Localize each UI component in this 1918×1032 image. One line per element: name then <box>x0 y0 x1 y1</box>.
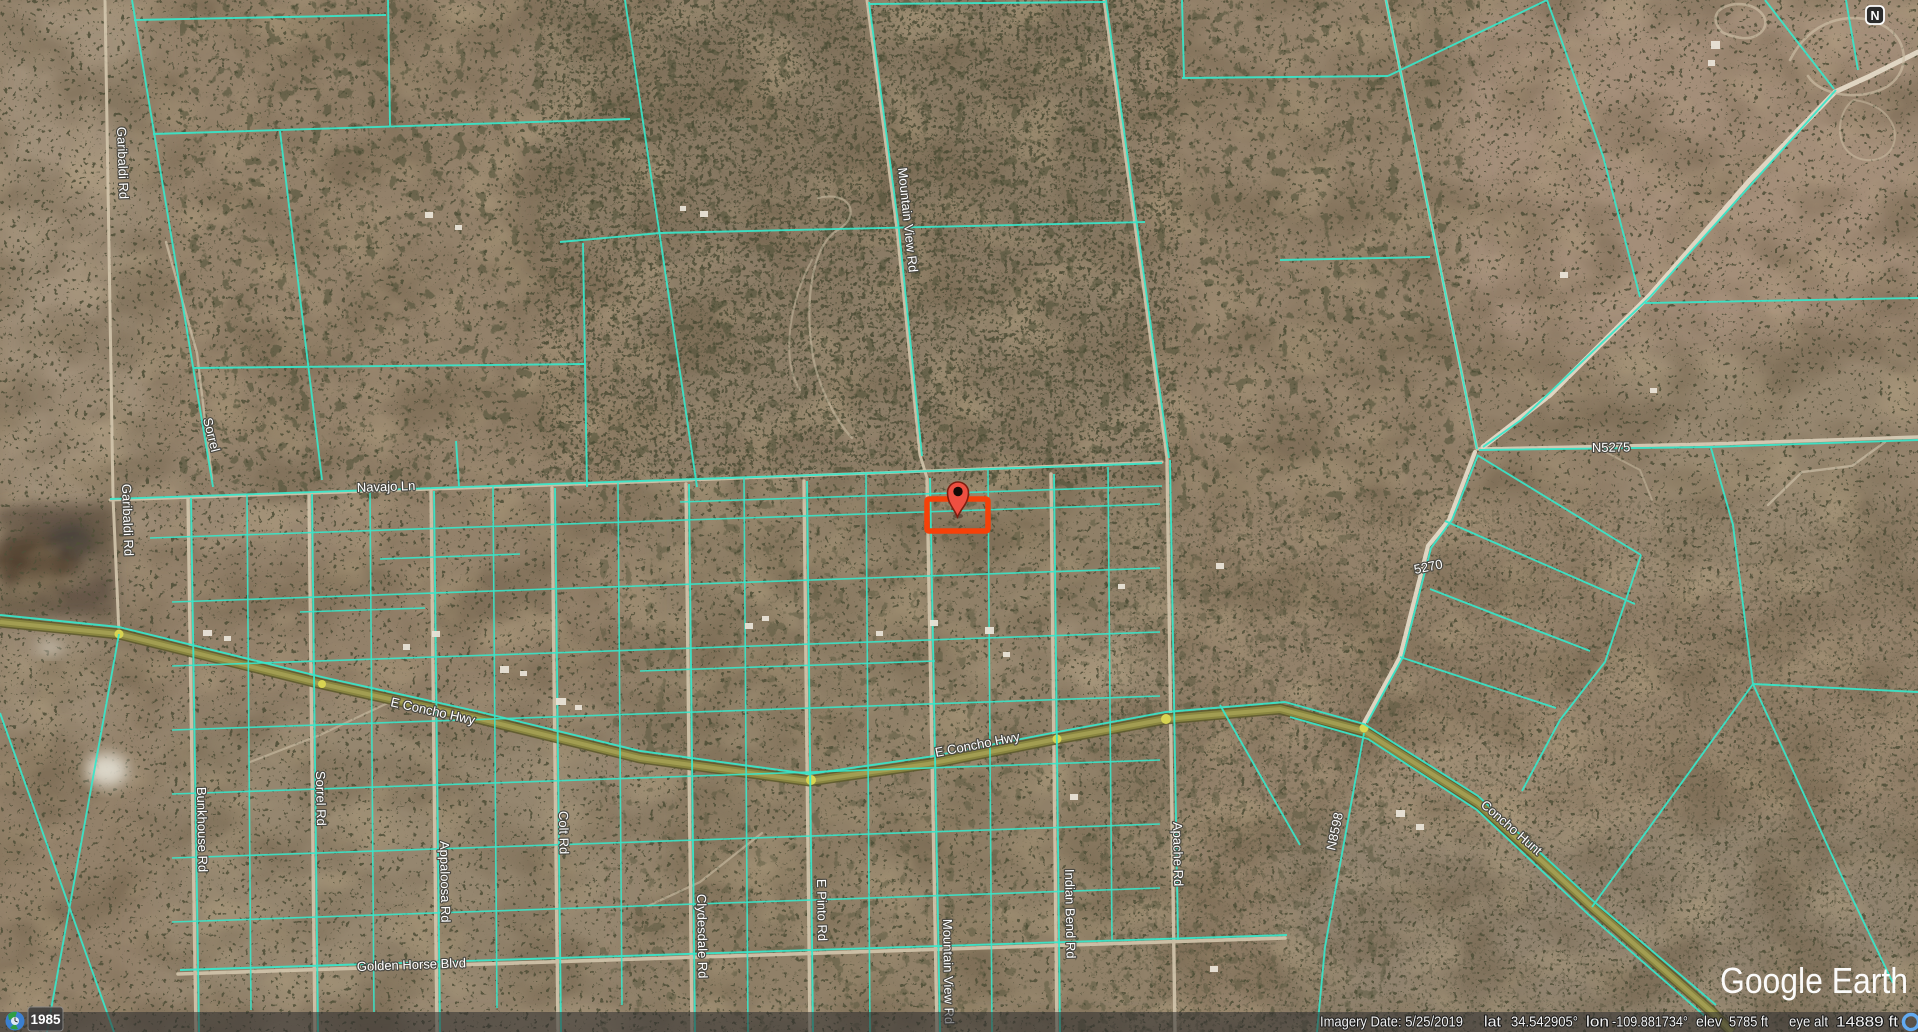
svg-text:34.542905°: 34.542905° <box>1511 1015 1578 1031</box>
svg-text:Imagery Date: 5/25/2019: Imagery Date: 5/25/2019 <box>1320 1015 1463 1031</box>
svg-text:Sorrel Rd: Sorrel Rd <box>313 771 329 826</box>
svg-text:Bunkhouse Rd: Bunkhouse Rd <box>194 787 210 873</box>
svg-text:N5275: N5275 <box>1592 439 1631 455</box>
svg-text:Garibaldi Rd: Garibaldi Rd <box>119 484 137 557</box>
svg-text:E Pinto Rd: E Pinto Rd <box>814 879 830 941</box>
svg-text:-109.881734°: -109.881734° <box>1612 1015 1688 1031</box>
svg-text:lon: lon <box>1586 1015 1609 1031</box>
svg-text:Google Earth: Google Earth <box>1720 960 1908 1001</box>
svg-text:Indian Bend Rd: Indian Bend Rd <box>1062 869 1079 959</box>
svg-text:1985: 1985 <box>30 1012 61 1027</box>
svg-text:Appaloosa Rd: Appaloosa Rd <box>437 841 453 923</box>
svg-text:Apache Rd: Apache Rd <box>1170 822 1186 887</box>
svg-text:Garibaldi Rd: Garibaldi Rd <box>114 127 132 200</box>
svg-text:N: N <box>1870 9 1879 23</box>
svg-text:5785 ft: 5785 ft <box>1729 1015 1768 1031</box>
svg-text:14889 ft: 14889 ft <box>1836 1015 1898 1031</box>
svg-text:Navajo Ln: Navajo Ln <box>357 478 416 495</box>
svg-text:elev: elev <box>1696 1015 1723 1031</box>
svg-text:Clydesdale Rd: Clydesdale Rd <box>694 894 710 979</box>
svg-text:Mountain View Rd: Mountain View Rd <box>940 919 957 1025</box>
svg-text:eye alt: eye alt <box>1789 1015 1828 1031</box>
svg-text:lat: lat <box>1484 1015 1501 1031</box>
svg-text:Colt Rd: Colt Rd <box>556 811 572 855</box>
